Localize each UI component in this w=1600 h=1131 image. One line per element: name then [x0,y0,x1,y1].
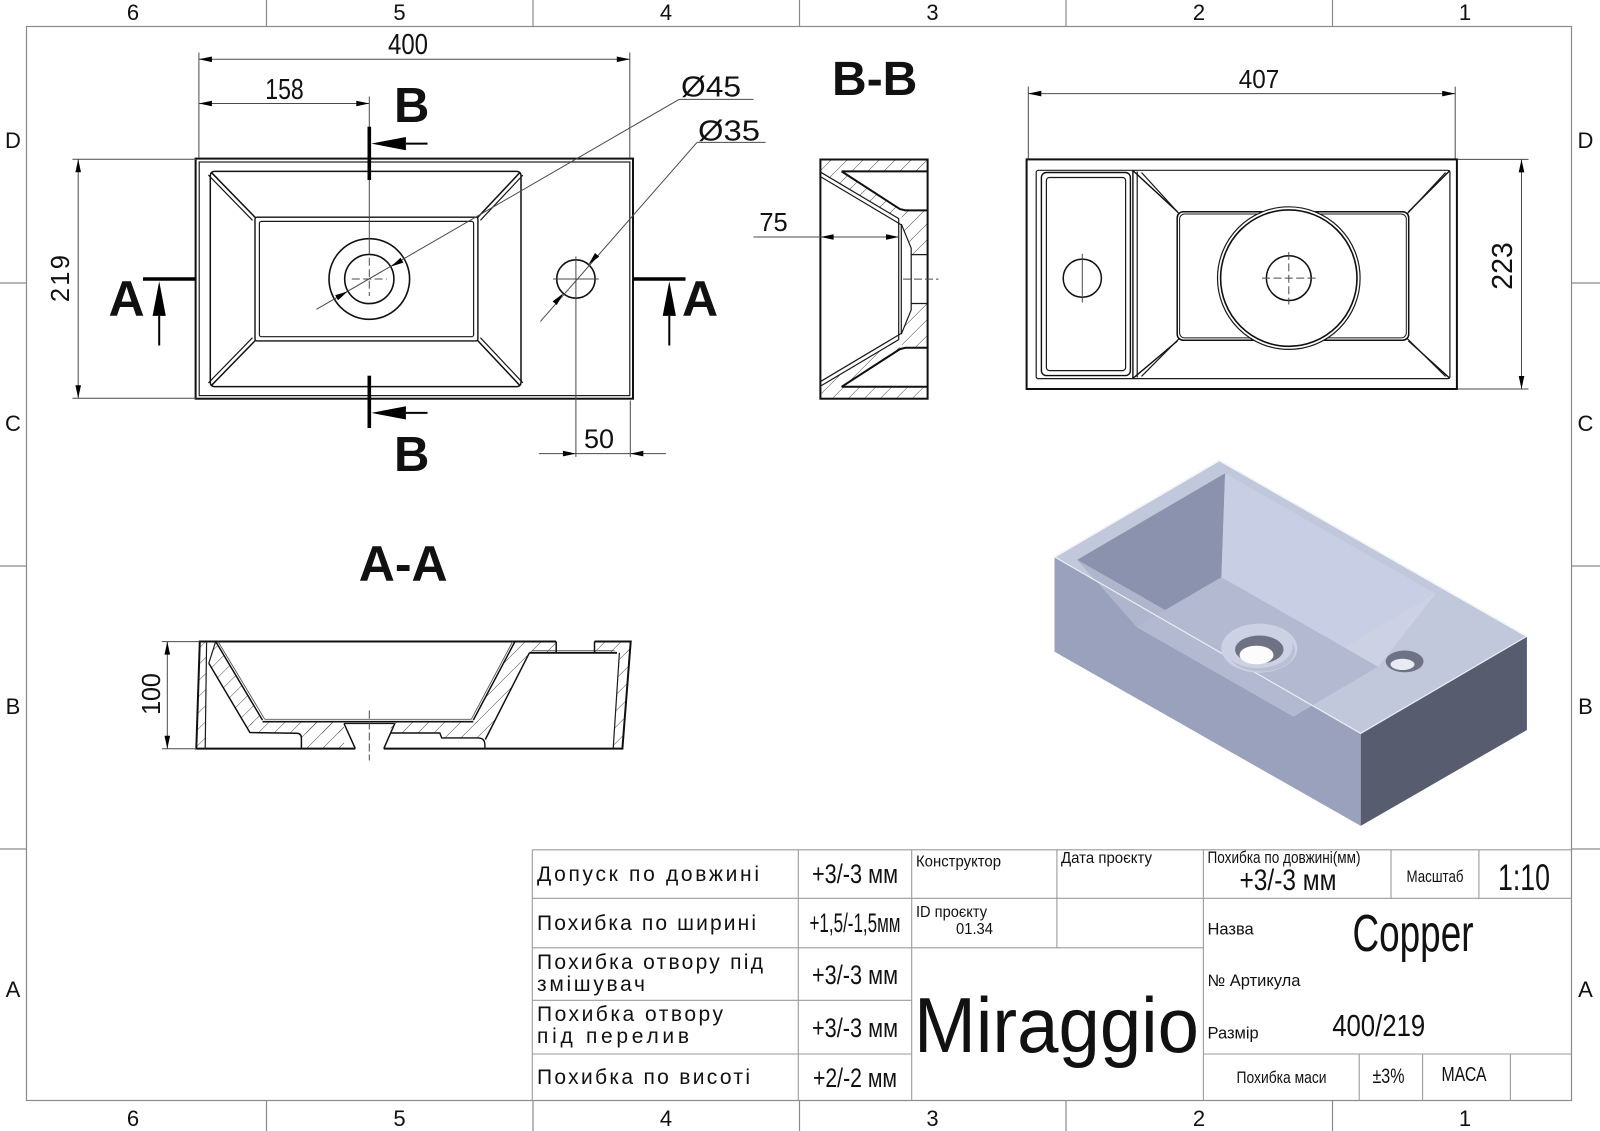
svg-text:400/219: 400/219 [1332,1008,1425,1043]
svg-text:158: 158 [265,74,304,106]
svg-text:75: 75 [759,209,787,237]
svg-text:1: 1 [1459,0,1471,25]
svg-text:+1,5/-1,5мм: +1,5/-1,5мм [810,908,901,938]
svg-text:4: 4 [660,1106,672,1131]
svg-text:Miraggio: Miraggio [914,981,1199,1069]
svg-text:Масштаб: Масштаб [1407,868,1464,886]
svg-text:5: 5 [393,0,405,25]
svg-text:3: 3 [926,1106,938,1131]
svg-text:B: B [394,79,429,133]
svg-text:+3/-3 мм: +3/-3 мм [1240,864,1337,897]
svg-text:2: 2 [1193,0,1205,25]
svg-text:Допуск по довжині: Допуск по довжині [537,863,759,886]
svg-text:ID проєкту: ID проєкту [916,904,987,921]
svg-text:Конструктор: Конструктор [916,854,1001,871]
svg-text:+3/-3 мм: +3/-3 мм [812,960,898,990]
svg-text:B: B [394,428,429,482]
svg-text:МАСА: МАСА [1442,1063,1487,1086]
svg-text:D: D [1578,128,1594,153]
svg-text:Похибка отвору: Похибка отвору [537,1003,724,1026]
svg-text:3: 3 [926,0,938,25]
svg-text:Похибка по ширині: Похибка по ширині [537,912,756,935]
svg-text:Ø35: Ø35 [698,116,760,148]
svg-text:Дата проєкту: Дата проєкту [1061,850,1152,867]
svg-text:A: A [109,271,145,327]
svg-text:50: 50 [584,424,614,454]
svg-text:±3%: ±3% [1373,1065,1405,1088]
svg-text:Похибка маси: Похибка маси [1237,1069,1327,1087]
svg-text:Назва: Назва [1208,921,1255,939]
svg-text:400: 400 [388,29,428,61]
svg-text:5: 5 [393,1106,405,1131]
svg-text:B: B [1578,694,1593,719]
svg-text:+3/-3 мм: +3/-3 мм [812,1013,898,1043]
svg-text:№ Артикула: № Артикула [1208,972,1302,990]
svg-text:A: A [6,977,21,1002]
svg-text:407: 407 [1239,64,1280,94]
svg-text:A-A: A-A [359,536,448,592]
svg-text:Ø45: Ø45 [681,72,741,104]
svg-text:1: 1 [1459,1106,1471,1131]
svg-text:01.34: 01.34 [956,921,993,938]
svg-text:6: 6 [127,0,139,25]
svg-text:B: B [6,694,21,719]
svg-text:D: D [5,128,21,153]
svg-text:219: 219 [47,255,75,302]
svg-text:Copper: Copper [1353,904,1474,962]
svg-text:223: 223 [1487,242,1519,290]
svg-text:A: A [1578,977,1593,1002]
svg-text:C: C [1578,411,1594,436]
svg-text:Размір: Размір [1208,1025,1259,1043]
svg-text:100: 100 [138,673,166,715]
svg-text:+2/-2 мм: +2/-2 мм [813,1063,897,1093]
svg-text:6: 6 [127,1106,139,1131]
svg-text:+3/-3 мм: +3/-3 мм [812,859,898,889]
svg-text:1:10: 1:10 [1498,857,1550,898]
svg-text:2: 2 [1193,1106,1205,1131]
svg-text:B-B: B-B [832,53,917,106]
svg-text:A: A [682,271,718,327]
svg-text:C: C [5,411,21,436]
svg-text:4: 4 [660,0,672,25]
